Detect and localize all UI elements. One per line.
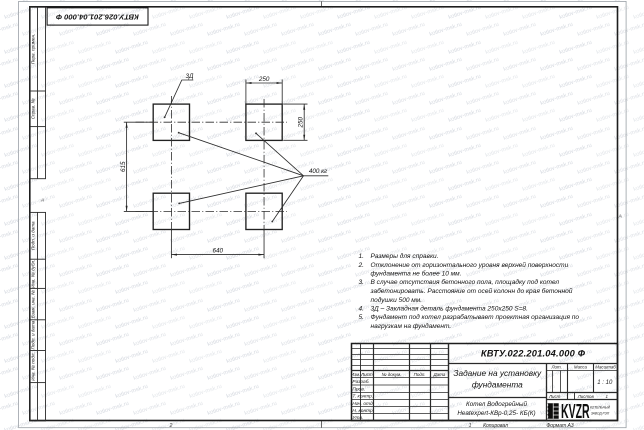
svg-text:1 : 10: 1 : 10 <box>597 380 613 386</box>
svg-text:1: 1 <box>469 423 472 429</box>
svg-text:Т. контр.: Т. контр. <box>352 394 373 400</box>
svg-text:КОТЕЛЬНЫЙ: КОТЕЛЬНЫЙ <box>590 406 611 410</box>
svg-text:подушки 500 мм.: подушки 500 мм. <box>371 296 423 304</box>
svg-text:Инв. № дубл.: Инв. № дубл. <box>31 260 36 288</box>
svg-text:Масса: Масса <box>574 365 588 370</box>
svg-text:Справ. №: Справ. № <box>31 98 36 119</box>
svg-text:Нач. отд: Нач. отд <box>352 401 373 407</box>
svg-text:А: А <box>618 214 622 219</box>
svg-text:615: 615 <box>120 161 127 172</box>
svg-text:4.: 4. <box>359 306 365 313</box>
svg-text:Масштаб: Масштаб <box>595 365 616 370</box>
svg-text:забетонировать. Расстояние от: забетонировать. Расстояние от осей колон… <box>370 287 573 295</box>
svg-text:Взам. инв. №: Взам. инв. № <box>31 290 36 318</box>
svg-text:Подп. и дата: Подп. и дата <box>31 320 36 349</box>
svg-text:Изм.: Изм. <box>351 372 361 377</box>
svg-text:250: 250 <box>258 76 270 83</box>
svg-text:KVZR: KVZR <box>561 401 590 423</box>
svg-text:КВТУ.022.201.04.000 Ф: КВТУ.022.201.04.000 Ф <box>481 348 586 358</box>
svg-text:Лит.: Лит. <box>551 365 562 370</box>
svg-text:Размеры для справки.: Размеры для справки. <box>371 252 439 260</box>
svg-text:№ докум.: № докум. <box>382 372 402 377</box>
svg-text:Копировал: Копировал <box>483 423 508 429</box>
svg-text:фундамента: фундамента <box>472 379 523 389</box>
svg-text:Котел Водогрейный: Котел Водогрейный <box>466 400 527 408</box>
svg-text:2: 2 <box>169 423 173 429</box>
svg-text:1.: 1. <box>359 253 365 260</box>
svg-text:Задание на установку: Задание на установку <box>453 368 542 378</box>
svg-text:Лист: Лист <box>360 372 373 377</box>
svg-text:Формат А3: Формат А3 <box>546 423 574 429</box>
svg-text:3Д – Закладная деталь фундамен: 3Д – Закладная деталь фундамента 250x250… <box>371 305 529 313</box>
svg-text:Пров.: Пров. <box>352 386 365 392</box>
svg-text:250: 250 <box>297 116 304 128</box>
svg-text:2.: 2. <box>358 262 365 269</box>
svg-text:400 кг: 400 кг <box>309 168 327 175</box>
svg-text:А: А <box>40 198 44 203</box>
svg-text:Фундамент под котел разрабатыв: Фундамент под котел разрабатывает проект… <box>371 313 580 321</box>
svg-text:Перв. примен.: Перв. примен. <box>31 34 36 65</box>
svg-text:Дата: Дата <box>432 372 445 377</box>
svg-text:3Д: 3Д <box>186 73 195 80</box>
svg-text:Лист: Лист <box>548 394 561 399</box>
svg-text:3.: 3. <box>359 279 365 286</box>
svg-text:Отклонение от горизонтального: Отклонение от горизонтального уровня вер… <box>371 261 569 269</box>
svg-text:В случае отсутствия бетонного: В случае отсутствия бетонного пола, площ… <box>371 278 560 286</box>
svg-text:Утв.: Утв. <box>352 415 363 421</box>
svg-text:5.: 5. <box>359 314 365 321</box>
svg-text:Инв. № подл.: Инв. № подл. <box>31 352 36 381</box>
svg-text:нагрузкам на фундамент.: нагрузкам на фундамент. <box>371 322 452 330</box>
svg-text:Листов: Листов <box>577 394 595 399</box>
svg-text:ЗАВОД РЭП: ЗАВОД РЭП <box>591 412 610 416</box>
svg-text:Н. контр.: Н. контр. <box>352 408 374 414</box>
svg-text:фундамента не более 10 мм.: фундамента не более 10 мм. <box>371 270 462 278</box>
svg-text:Heatexpert-КВр-0,25- КБ(К): Heatexpert-КВр-0,25- КБ(К) <box>457 410 535 417</box>
svg-text:Подп. и дата: Подп. и дата <box>31 221 36 250</box>
svg-text:640: 640 <box>212 248 223 255</box>
svg-text:Разраб.: Разраб. <box>352 379 369 385</box>
svg-text:Подп.: Подп. <box>414 372 426 377</box>
svg-text:КВТУ.026.201.04.000 Ф: КВТУ.026.201.04.000 Ф <box>56 12 139 21</box>
